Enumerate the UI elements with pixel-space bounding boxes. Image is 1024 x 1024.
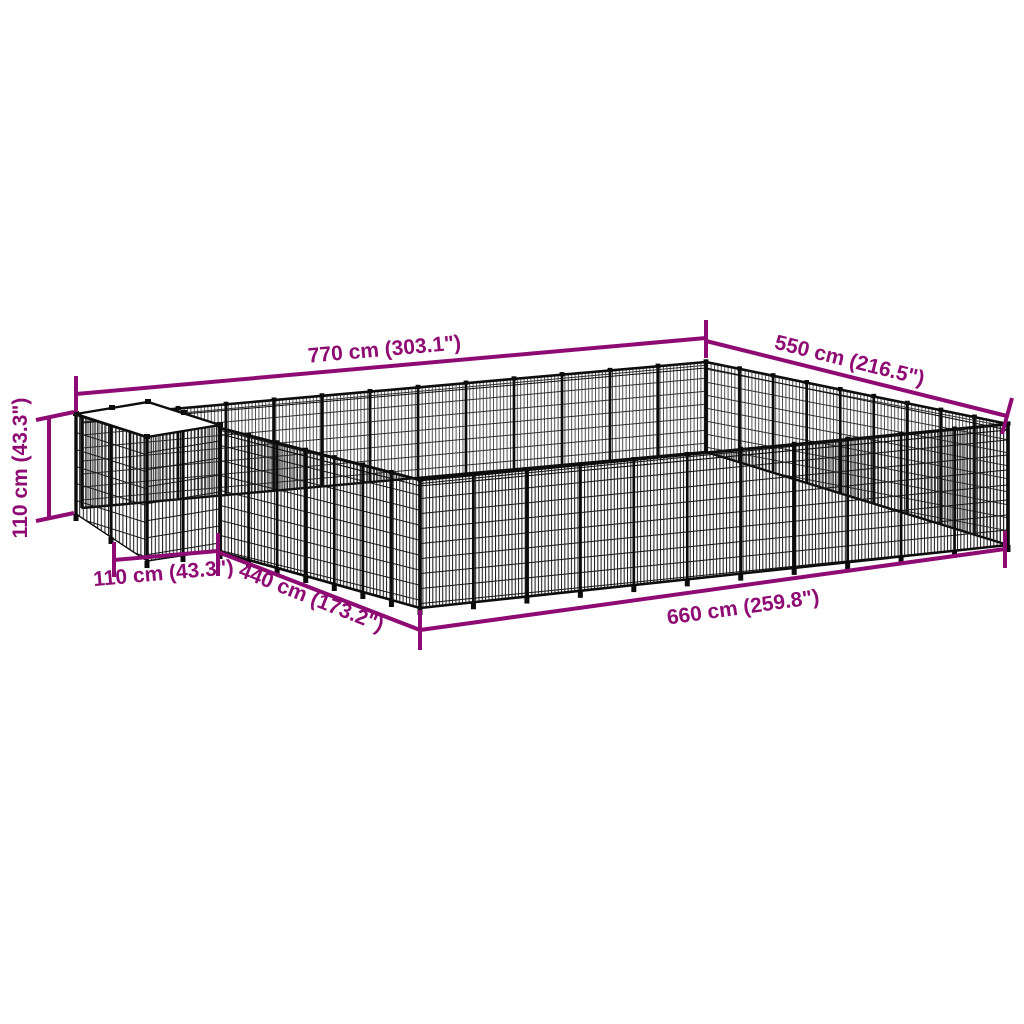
dimension-110-height: 110 cm (43.3") bbox=[9, 398, 74, 539]
diagram-canvas: 770 cm (303.1") 550 cm (216.5") 110 cm (… bbox=[0, 0, 1024, 1024]
kennel-dimension-diagram: 770 cm (303.1") 550 cm (216.5") 110 cm (… bbox=[0, 0, 1024, 1024]
cube-cage bbox=[73, 399, 223, 568]
dimension-label-110-height: 110 cm (43.3") bbox=[9, 398, 32, 539]
